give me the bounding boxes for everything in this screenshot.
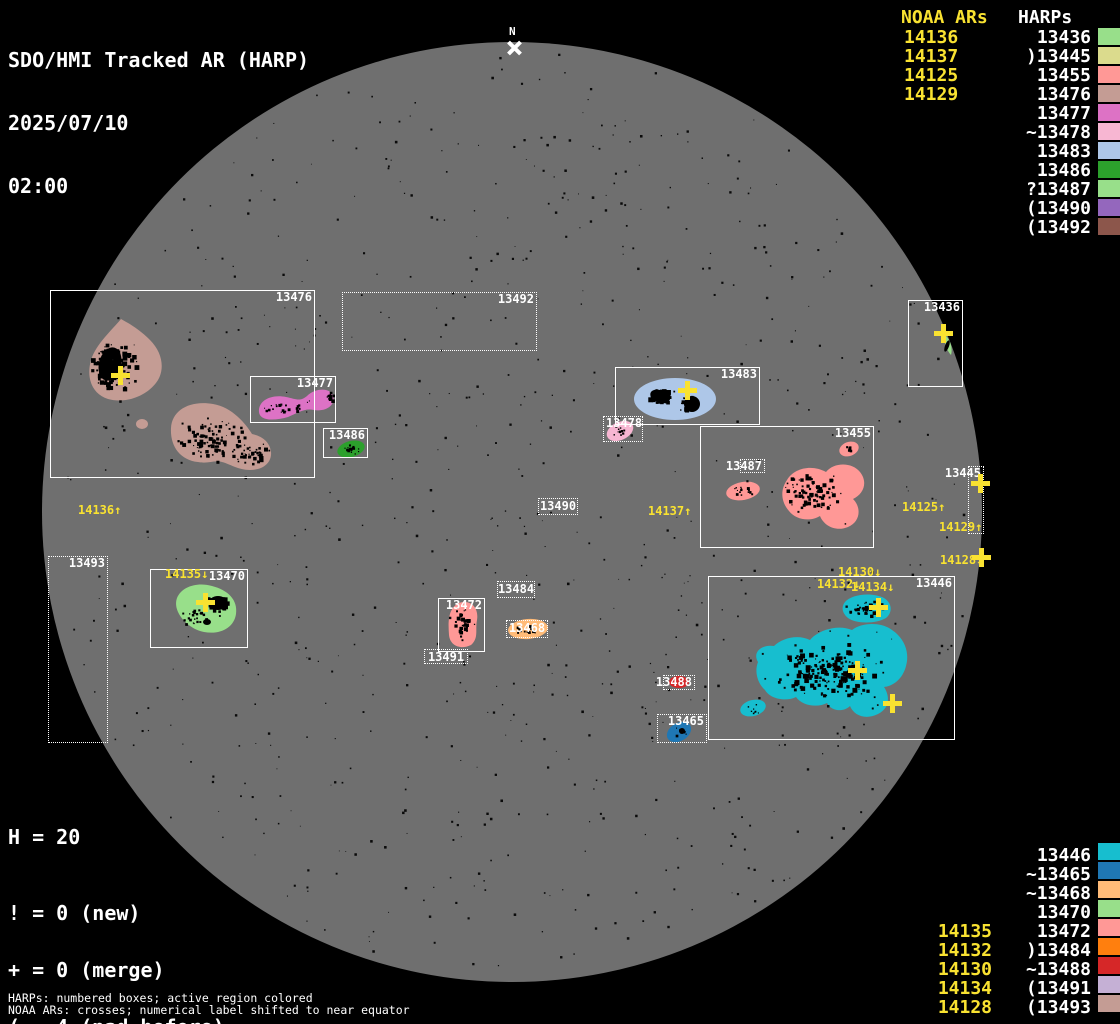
harp-box-label: 13492 (498, 293, 534, 306)
harp-list-item: 13455 (985, 66, 1091, 85)
noaa-cross-icon (972, 548, 991, 567)
noaa-list-item: 14136 (904, 28, 958, 47)
harp-swatches-bottom (1098, 843, 1120, 1014)
harp-box-label: 13468 (509, 622, 545, 635)
flag-line: ! = 0 (new) (8, 904, 237, 923)
harp-box-13468: 13468 (506, 620, 548, 638)
noaa-list-bottom: 14135 14132 14130 14134 14128 (934, 922, 992, 1017)
harp-count: H = 20 (8, 828, 80, 847)
color-swatch (1098, 66, 1120, 83)
harp-list-item: 13436 (985, 28, 1091, 47)
color-swatch (1098, 180, 1120, 197)
plot-date: 2025/07/10 (8, 113, 309, 134)
harp-swatches-top (1098, 28, 1120, 237)
harp-box-label: 13477 (297, 377, 333, 390)
noaa-ar-label: 14137↑ (648, 505, 691, 518)
harp-box-label: 13455 (835, 427, 871, 440)
north-x-icon (506, 39, 523, 56)
harp-box-label: 13472 (446, 599, 482, 612)
harp-box-label: 13465 (668, 715, 704, 728)
harp-list-item: (13491 (985, 979, 1091, 998)
harp-list-bottom: 13446 ~13465 ~13468 13470 13472 )13484 ~… (985, 846, 1091, 1017)
noaa-ar-label: 14125↑ (902, 501, 945, 514)
noaa-cross-icon (111, 366, 130, 385)
harp-box-label: 13483 (721, 368, 757, 381)
harp-box-13492: 13492 (342, 292, 537, 351)
noaa-list-top: 14136 14137 14125 14129 (904, 28, 958, 104)
noaa-ars-header: NOAA ARs (901, 8, 988, 27)
noaa-cross-icon (678, 381, 697, 400)
harp-list-top: 13436 )13445 13455 13476 13477 ~13478 13… (985, 28, 1091, 237)
harp-box-13486: 13486 (323, 428, 368, 458)
color-swatch (1098, 843, 1120, 860)
harp-box-label: 13488 (656, 676, 692, 689)
color-swatch (1098, 47, 1120, 64)
color-swatch (1098, 900, 1120, 917)
harp-list-item: 13446 (985, 846, 1091, 865)
harp-box-13488: 13488 (663, 675, 695, 690)
harp-box-label: 13446 (916, 577, 952, 590)
harp-box-label: 13490 (540, 500, 576, 513)
harp-list-item: ~13478 (985, 123, 1091, 142)
noaa-cross-icon (971, 474, 990, 493)
harp-list-item: )13484 (985, 941, 1091, 960)
harp-box-13465: 13465 (657, 714, 707, 743)
harp-box-13436: 13436 (908, 300, 963, 387)
harp-box-13490: 13490 (538, 498, 578, 515)
harp-list-item: ~13488 (985, 960, 1091, 979)
color-swatch (1098, 862, 1120, 879)
harp-list-item: (13492 (985, 218, 1091, 237)
noaa-cross-icon (883, 694, 902, 713)
harp-list-item: 13477 (985, 104, 1091, 123)
noaa-cross-icon (869, 598, 888, 617)
harp-box-13493: 13493 (48, 556, 108, 743)
harp-list-item: 13486 (985, 161, 1091, 180)
color-swatch (1098, 919, 1120, 936)
harp-box-13472: 13472 (438, 598, 485, 652)
harp-box-13484: 13484 (497, 581, 535, 598)
harp-list-item: )13445 (985, 47, 1091, 66)
noaa-ar-label: 14134↓ (851, 581, 894, 594)
title-block: SDO/HMI Tracked AR (HARP) 2025/07/10 02:… (8, 8, 309, 239)
harp-box-label: 13476 (276, 291, 312, 304)
noaa-list-item: 14128 (934, 998, 992, 1017)
noaa-ar-label: 14135↓ (165, 568, 208, 581)
noaa-cross-icon (848, 661, 867, 680)
harp-box-13477: 13477 (250, 376, 336, 423)
harp-box-label: 13478 (606, 417, 642, 430)
noaa-list-item: 14132 (934, 941, 992, 960)
harp-list-item: ~13468 (985, 884, 1091, 903)
harp-box-label: 13486 (329, 429, 365, 442)
noaa-cross-icon (934, 324, 953, 343)
noaa-ar-label: 14136↑ (78, 504, 121, 517)
harp-list-item: 13470 (985, 903, 1091, 922)
noaa-list-item: 14135 (934, 922, 992, 941)
flag-line: + = 0 (merge) (8, 961, 237, 980)
harp-box-label: 13487 (726, 460, 762, 473)
harp-tracking-plot: SDO/HMI Tracked AR (HARP) 2025/07/10 02:… (0, 0, 1120, 1024)
color-swatch (1098, 104, 1120, 121)
noaa-list-item: 14137 (904, 47, 958, 66)
color-swatch (1098, 28, 1120, 45)
harp-box-13446: 13446 (708, 576, 955, 740)
harp-list-item: (13493 (985, 998, 1091, 1017)
plot-title: SDO/HMI Tracked AR (HARP) (8, 50, 309, 71)
noaa-cross-icon (196, 593, 215, 612)
harp-box-label: 13436 (924, 301, 960, 314)
harp-box-13478: 13478 (603, 416, 643, 442)
harps-header: HARPs (1018, 8, 1072, 27)
harp-box-13487: 13487 (740, 459, 765, 473)
noaa-list-item: 14129 (904, 85, 958, 104)
noaa-list-item: 14125 (904, 66, 958, 85)
flag-line: ( = 4 (pad before) (8, 1018, 237, 1024)
harp-box-13455: 13455 (700, 426, 874, 548)
color-swatch (1098, 957, 1120, 974)
harp-box-label: 13491 (428, 651, 464, 664)
color-swatch (1098, 123, 1120, 140)
noaa-list-item: 14134 (934, 979, 992, 998)
noaa-ar-label: 14129↑ (939, 521, 982, 534)
harp-list-item: ?13487 (985, 180, 1091, 199)
color-swatch (1098, 995, 1120, 1012)
color-swatch (1098, 881, 1120, 898)
harp-list-item: 13483 (985, 142, 1091, 161)
color-swatch (1098, 218, 1120, 235)
harp-list-item: 13472 (985, 922, 1091, 941)
harp-box-label: 13493 (69, 557, 105, 570)
footnote-noaa: NOAA ARs: crosses; numerical label shift… (8, 1004, 410, 1016)
color-swatch (1098, 976, 1120, 993)
harp-box-label: 13484 (498, 583, 534, 596)
north-label: N (509, 25, 516, 38)
noaa-list-item: 14130 (934, 960, 992, 979)
plot-time: 02:00 (8, 176, 309, 197)
color-swatch (1098, 161, 1120, 178)
harp-list-item: 13476 (985, 85, 1091, 104)
harp-box-13491: 13491 (424, 649, 468, 664)
color-swatch (1098, 142, 1120, 159)
harp-box-label: 13470 (209, 570, 245, 583)
color-swatch (1098, 85, 1120, 102)
color-swatch (1098, 199, 1120, 216)
color-swatch (1098, 938, 1120, 955)
harp-list-item: ~13465 (985, 865, 1091, 884)
harp-list-item: (13490 (985, 199, 1091, 218)
